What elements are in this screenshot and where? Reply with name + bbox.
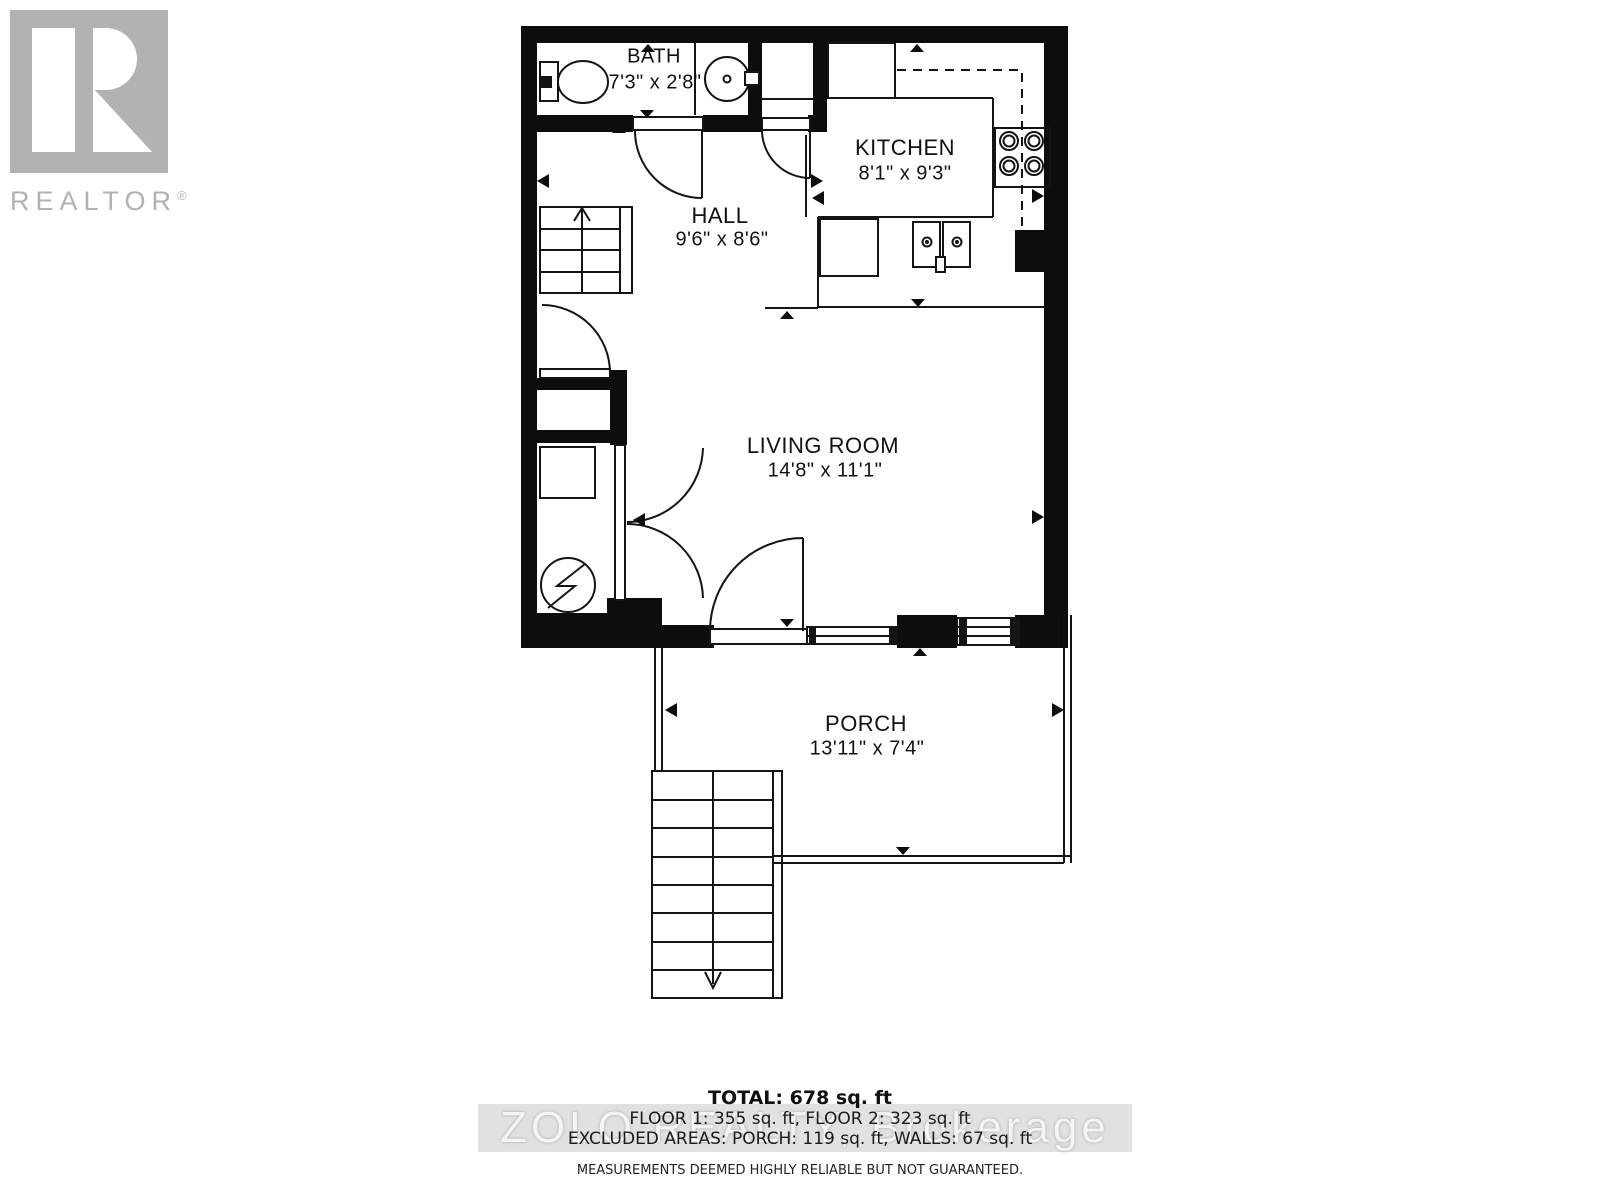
wall-right [1044,26,1068,648]
arrow-left-porch [665,703,677,717]
arrow-down-porch-bottom [896,847,910,855]
sink-faucet [745,72,759,85]
double-sink [913,222,970,272]
closet-door [762,130,810,178]
floor-areas: FLOOR 1: 355 sq. ft, FLOOR 2: 323 sq. ft [568,1109,1032,1129]
closet-door-opening [762,118,810,130]
left-closets [540,447,595,612]
wall-bottom-left [521,613,617,648]
french-doors [615,445,703,600]
hall-label: HALL [691,203,748,229]
wall-bottom-step [607,598,662,648]
kitchen-label: KITCHEN [855,135,955,161]
wall-chase-block [1015,230,1046,272]
bath-door [635,131,702,198]
dishwasher [820,219,878,276]
disclaimer: MEASUREMENTS DEEMED HIGHLY RELIABLE BUT … [568,1163,1032,1178]
arrow-right-porch [1052,703,1064,717]
wall-understairs [528,378,610,390]
bath-label: BATH [627,46,681,69]
wall-bottom-entry-left [657,625,714,648]
floorplan-page: REALTOR® [0,0,1600,1200]
wall-bottom-right-corner [1015,615,1068,648]
wall-closet-bottom [528,430,627,443]
understairs-closet-door [540,305,610,378]
arrow-up-porch-top [913,648,927,656]
electrical-bolt [548,564,585,608]
bath-dimensions: 7'3" x 2'8" [609,72,702,95]
arrow-right-living-wall [1032,510,1044,524]
porch-dimensions: 13'11" x 7'4" [810,738,925,761]
porch-label: PORCH [825,711,907,737]
entry-door [710,538,803,631]
excluded-areas: EXCLUDED AREAS: PORCH: 119 sq. ft, WALLS… [568,1129,1032,1149]
arrow-right-kitchen-left [811,174,823,188]
stairs-up [540,207,632,293]
fridge [828,43,895,98]
arrow-up-living-top [780,311,794,319]
wall-closet-kitchen-divider [813,26,827,123]
hall-dimensions: 9'6" x 8'6" [676,229,769,252]
entry-threshold [710,629,807,644]
toilet-flush [542,77,551,87]
arrow-up-kitchen [910,44,924,52]
arrow-left-kitchen [812,191,824,205]
stairs-down [652,771,782,998]
closet-cabinet [540,447,595,498]
total-area: TOTAL: 678 sq. ft [568,1088,1032,1109]
arrow-right-kitchen-wall [1032,189,1044,203]
wall-bottom-between-windows [897,615,957,648]
area-summary: TOTAL: 678 sq. ft FLOOR 1: 355 sq. ft, F… [568,1088,1032,1178]
toilet-bowl [558,61,608,103]
floorplan-drawing [0,0,1600,1200]
living-room-dimensions: 14'8" x 11'1" [768,460,883,483]
sink-drain [724,76,731,83]
arrow-down-counter [911,299,925,307]
arrow-left-hall-wall [537,174,549,188]
wall-top [521,26,1068,43]
kitchen-dimensions: 8'1" x 9'3" [859,163,952,186]
arrow-down-threshold [780,619,794,627]
living-room-label: LIVING ROOM [747,433,899,459]
bath-door-opening [633,117,703,130]
